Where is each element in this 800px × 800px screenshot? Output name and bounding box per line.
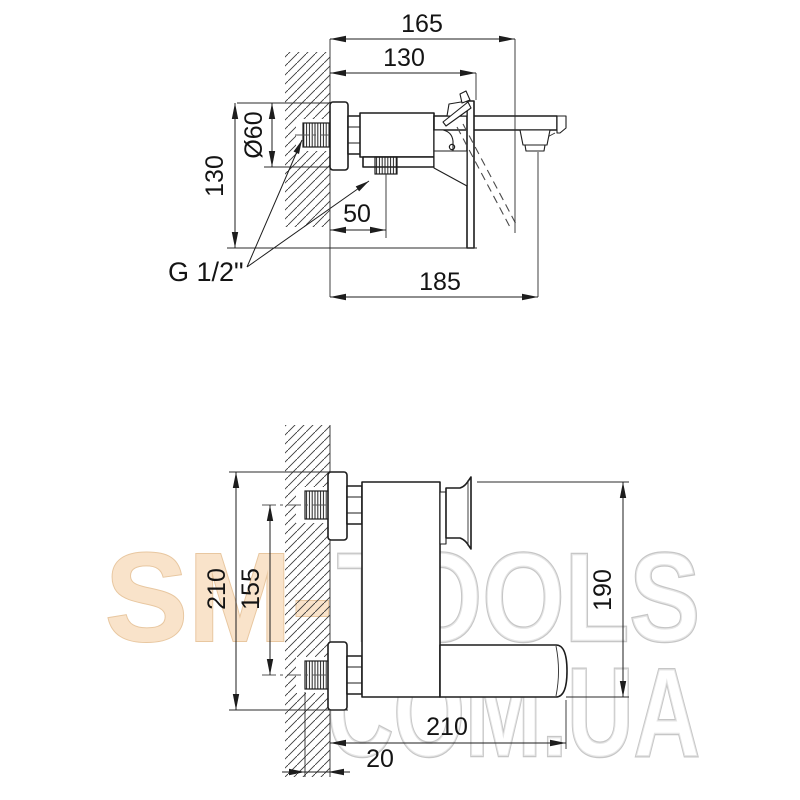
upper-hex-nut (347, 486, 362, 524)
back-plate (467, 101, 474, 248)
handle-stem (440, 492, 446, 544)
wall-hatch (285, 425, 330, 777)
escutcheon (330, 102, 348, 170)
outlet-thread (375, 157, 397, 174)
mixer-body (362, 482, 440, 697)
thread-size-label: G 1/2" (168, 257, 244, 287)
aerator (520, 130, 550, 145)
dim-body-height-label: 190 (589, 569, 617, 611)
dim-outlet-offset-label: 50 (343, 200, 371, 228)
dim-wall-offset-label: 20 (366, 745, 394, 773)
dim-overall-depth-label: 165 (401, 10, 443, 38)
dim-body-depth-label: 130 (383, 44, 425, 72)
dim-port-spacing-label: 155 (237, 568, 265, 610)
spout-tip (557, 116, 566, 133)
upper-escutcheon (328, 472, 347, 540)
aerator-lip (525, 145, 545, 151)
hex-nut (348, 116, 361, 154)
dim-spout-reach-label: 210 (426, 713, 468, 741)
top-view: 165 130 Ø60 130 50 185 G 1/2" (168, 10, 566, 300)
lower-escutcheon (328, 642, 347, 710)
faucet-technical-drawing: SM- TOOLS COM.UA (0, 0, 800, 800)
faucet-spec-page: SM- TOOLS COM.UA (0, 0, 800, 800)
spout (440, 645, 567, 697)
lower-hex-nut (347, 656, 362, 694)
handle-bell (446, 477, 471, 549)
dim-spout-depth-label: 185 (419, 268, 461, 296)
dim-flange-diameter-label: Ø60 (240, 111, 268, 158)
body-underside (363, 157, 434, 167)
dim-overall-height-label: 210 (203, 568, 231, 610)
dim-height-label: 130 (201, 155, 229, 197)
mixer-body (360, 113, 434, 157)
bracket-lower (434, 151, 467, 186)
